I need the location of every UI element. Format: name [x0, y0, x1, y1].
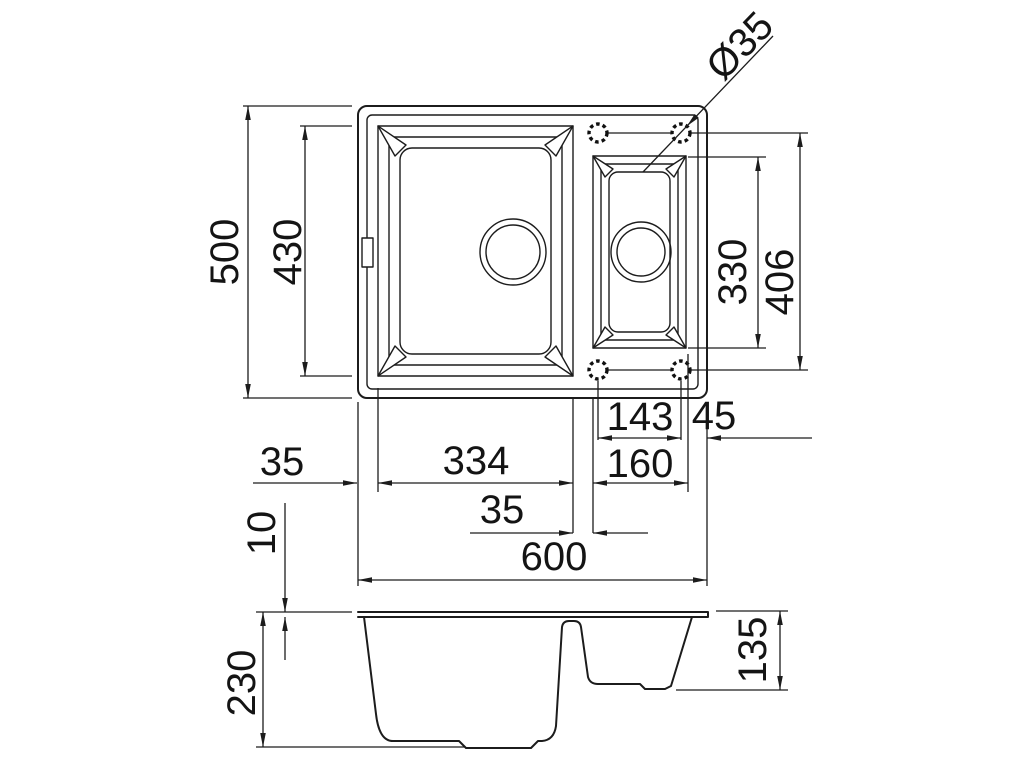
dim-143-label: 143	[607, 395, 674, 439]
section-bowl-profile	[364, 617, 692, 748]
dim-334-label: 334	[443, 439, 510, 483]
dim-330-label: 330	[711, 239, 755, 306]
drawing-canvas: 500 430 330 406 Ø35 143 45	[0, 0, 1024, 768]
overflow-slot	[362, 238, 373, 267]
dim-230-label: 230	[220, 650, 264, 717]
small-bowl-drain	[611, 222, 671, 282]
main-bowl-drain	[480, 219, 546, 285]
small-bowl	[593, 156, 686, 348]
tap-hole	[589, 124, 607, 142]
dim-430-label: 430	[266, 219, 310, 286]
dim-406-label: 406	[758, 249, 802, 316]
dimension-annotations: 500 430 330 406 Ø35 143 45	[203, 4, 812, 586]
dim-35-gap-label: 35	[480, 488, 525, 532]
dim-35-left-label: 35	[260, 440, 305, 484]
dim-500-label: 500	[203, 219, 247, 286]
main-bowl	[362, 126, 573, 376]
section-view: 10 230 135	[220, 503, 788, 748]
tap-hole	[589, 361, 607, 379]
dim-45-label: 45	[692, 394, 737, 438]
dim-600-label: 600	[521, 535, 588, 579]
dim-160-label: 160	[607, 442, 674, 486]
tap-diameter-label: Ø35	[698, 4, 782, 89]
dim-10-label: 10	[240, 511, 284, 556]
dim-135-label: 135	[731, 617, 775, 684]
tap-hole	[672, 361, 690, 379]
sink-dimension-drawing: 500 430 330 406 Ø35 143 45	[0, 0, 1024, 768]
section-rim	[358, 612, 708, 617]
